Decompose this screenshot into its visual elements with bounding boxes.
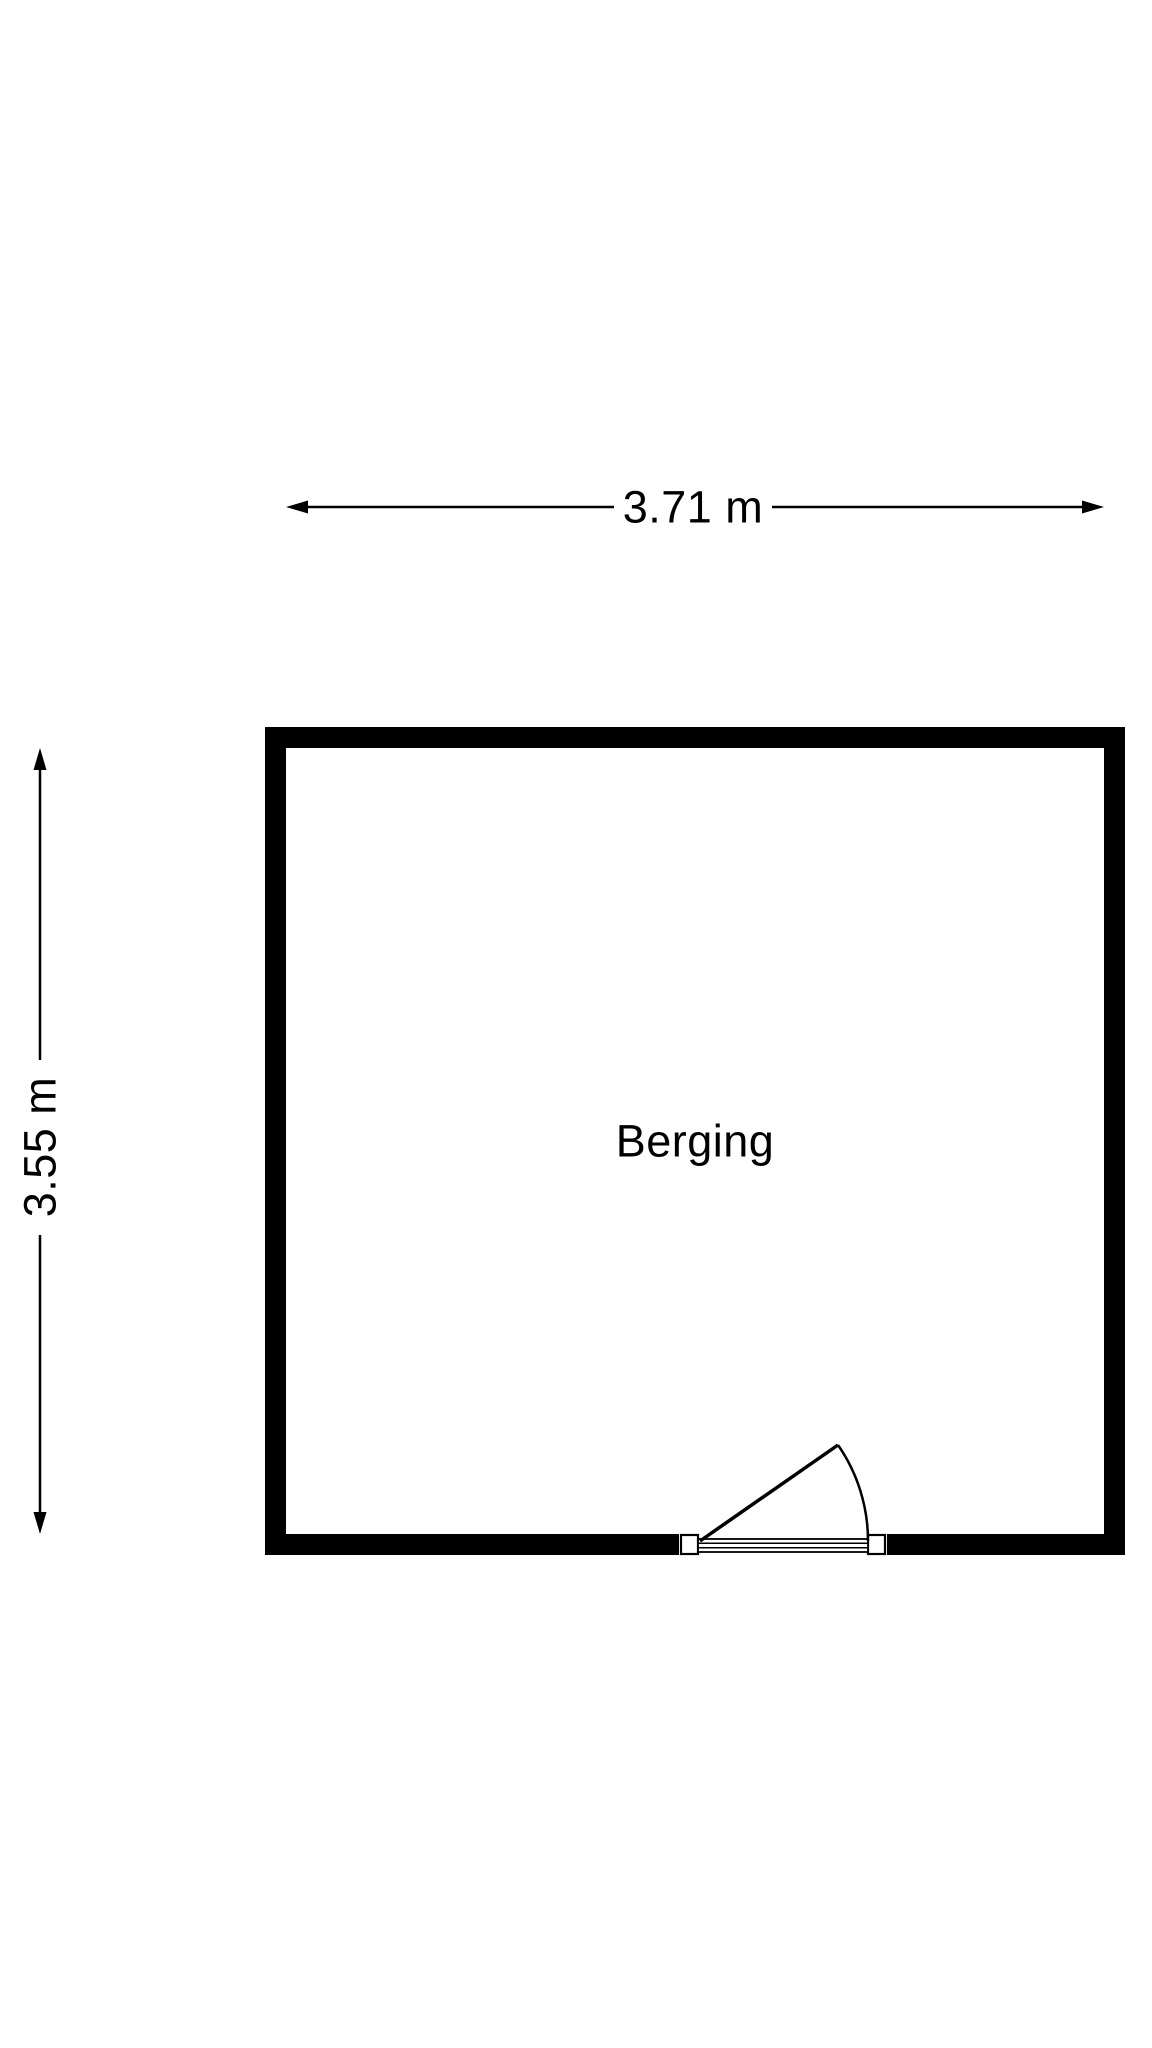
room-label: Berging [616,1119,775,1164]
floorplan-canvas: 3.71 m 3.55 m Berging [0,0,1152,2048]
door-threshold [698,1539,868,1552]
dim-arrow-left-icon [286,501,308,514]
width-dimension-label: 3.71 m [623,485,764,530]
height-dimension-label: 3.55 m [18,1077,63,1218]
dim-arrow-up-icon [34,748,47,770]
floorplan-drawing [0,0,1152,2048]
door-jamb-left [681,1535,698,1554]
dim-arrow-right-icon [1082,501,1104,514]
dim-arrow-down-icon [34,1512,47,1534]
door-jamb-right [868,1535,885,1554]
